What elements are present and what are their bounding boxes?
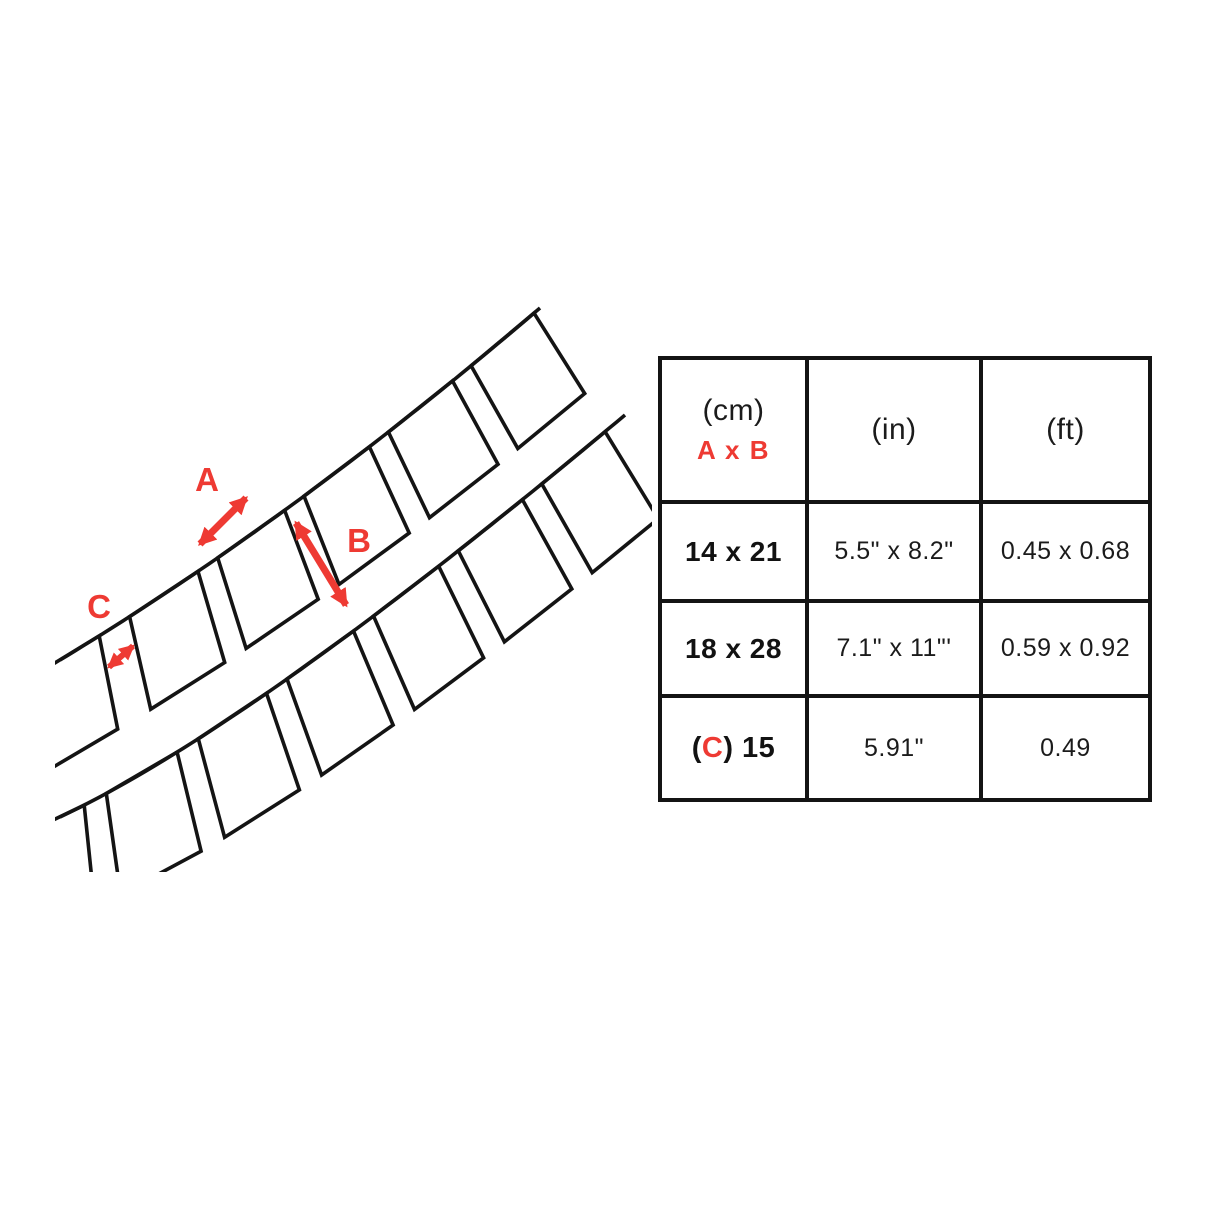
axb-label: A x B xyxy=(697,435,770,466)
arrow-a xyxy=(200,498,246,544)
product-dimension-graphic: A B C (cm) A x B (in) (ft) 14 x 21 5.5" … xyxy=(0,0,1214,1214)
unit-cm-label: (cm) xyxy=(703,394,765,428)
arrow-c xyxy=(109,646,133,667)
table-cell-size2-in: 7.1" x 11"' xyxy=(807,601,981,696)
table-cell-size1-in: 5.5" x 8.2" xyxy=(807,502,981,601)
paren-open: ( xyxy=(692,732,702,764)
table-header-cm: (cm) A x B xyxy=(660,358,807,502)
bunting-flag xyxy=(29,636,118,773)
label-c: C xyxy=(87,588,111,625)
bunting-flag xyxy=(130,571,225,709)
table-cell-size2-cm: 18 x 28 xyxy=(660,601,807,696)
bunting-flag xyxy=(106,752,201,894)
bunting-flag xyxy=(458,500,572,642)
table-cell-size2-ft: 0.59 x 0.92 xyxy=(981,601,1150,696)
label-b: B xyxy=(347,522,371,559)
table-cell-size1-ft: 0.45 x 0.68 xyxy=(981,502,1150,601)
size2-in: 7.1" x 11"' xyxy=(836,634,951,663)
bunting-flag xyxy=(374,566,484,709)
size1-cm: 14 x 21 xyxy=(685,536,782,568)
size2-ft: 0.59 x 0.92 xyxy=(1001,634,1130,663)
size2-cm: 18 x 28 xyxy=(685,633,782,665)
bunting-flag xyxy=(198,693,299,837)
paren-close-value: ) 15 xyxy=(723,732,775,764)
table-cell-gap-ft: 0.49 xyxy=(981,696,1150,800)
size1-in: 5.5" x 8.2" xyxy=(834,537,953,566)
bunting-string xyxy=(60,308,540,660)
bunting-flag xyxy=(471,313,585,448)
bunting-string xyxy=(60,415,625,817)
gap-cm: (C) 15 xyxy=(692,732,776,765)
bunting-flag xyxy=(10,805,94,942)
size1-ft: 0.45 x 0.68 xyxy=(1001,537,1130,566)
unit-in-label: (in) xyxy=(871,413,916,447)
table-header-ft: (ft) xyxy=(981,358,1150,502)
unit-ft-label: (ft) xyxy=(1046,413,1085,447)
label-a: A xyxy=(195,461,219,498)
bunting-flag xyxy=(542,432,659,573)
gap-ft: 0.49 xyxy=(1040,734,1091,763)
gap-in: 5.91" xyxy=(864,734,924,763)
c-letter: C xyxy=(702,732,723,764)
table-cell-gap-in: 5.91" xyxy=(807,696,981,800)
size-table: (cm) A x B (in) (ft) 14 x 21 5.5" x 8.2"… xyxy=(658,356,1152,802)
bunting-flag xyxy=(287,631,393,775)
table-cell-gap-cm: (C) 15 xyxy=(660,696,807,800)
table-header-in: (in) xyxy=(807,358,981,502)
bunting-strings xyxy=(10,308,658,942)
bunting-flag xyxy=(388,381,498,518)
table-cell-size1-cm: 14 x 21 xyxy=(660,502,807,601)
